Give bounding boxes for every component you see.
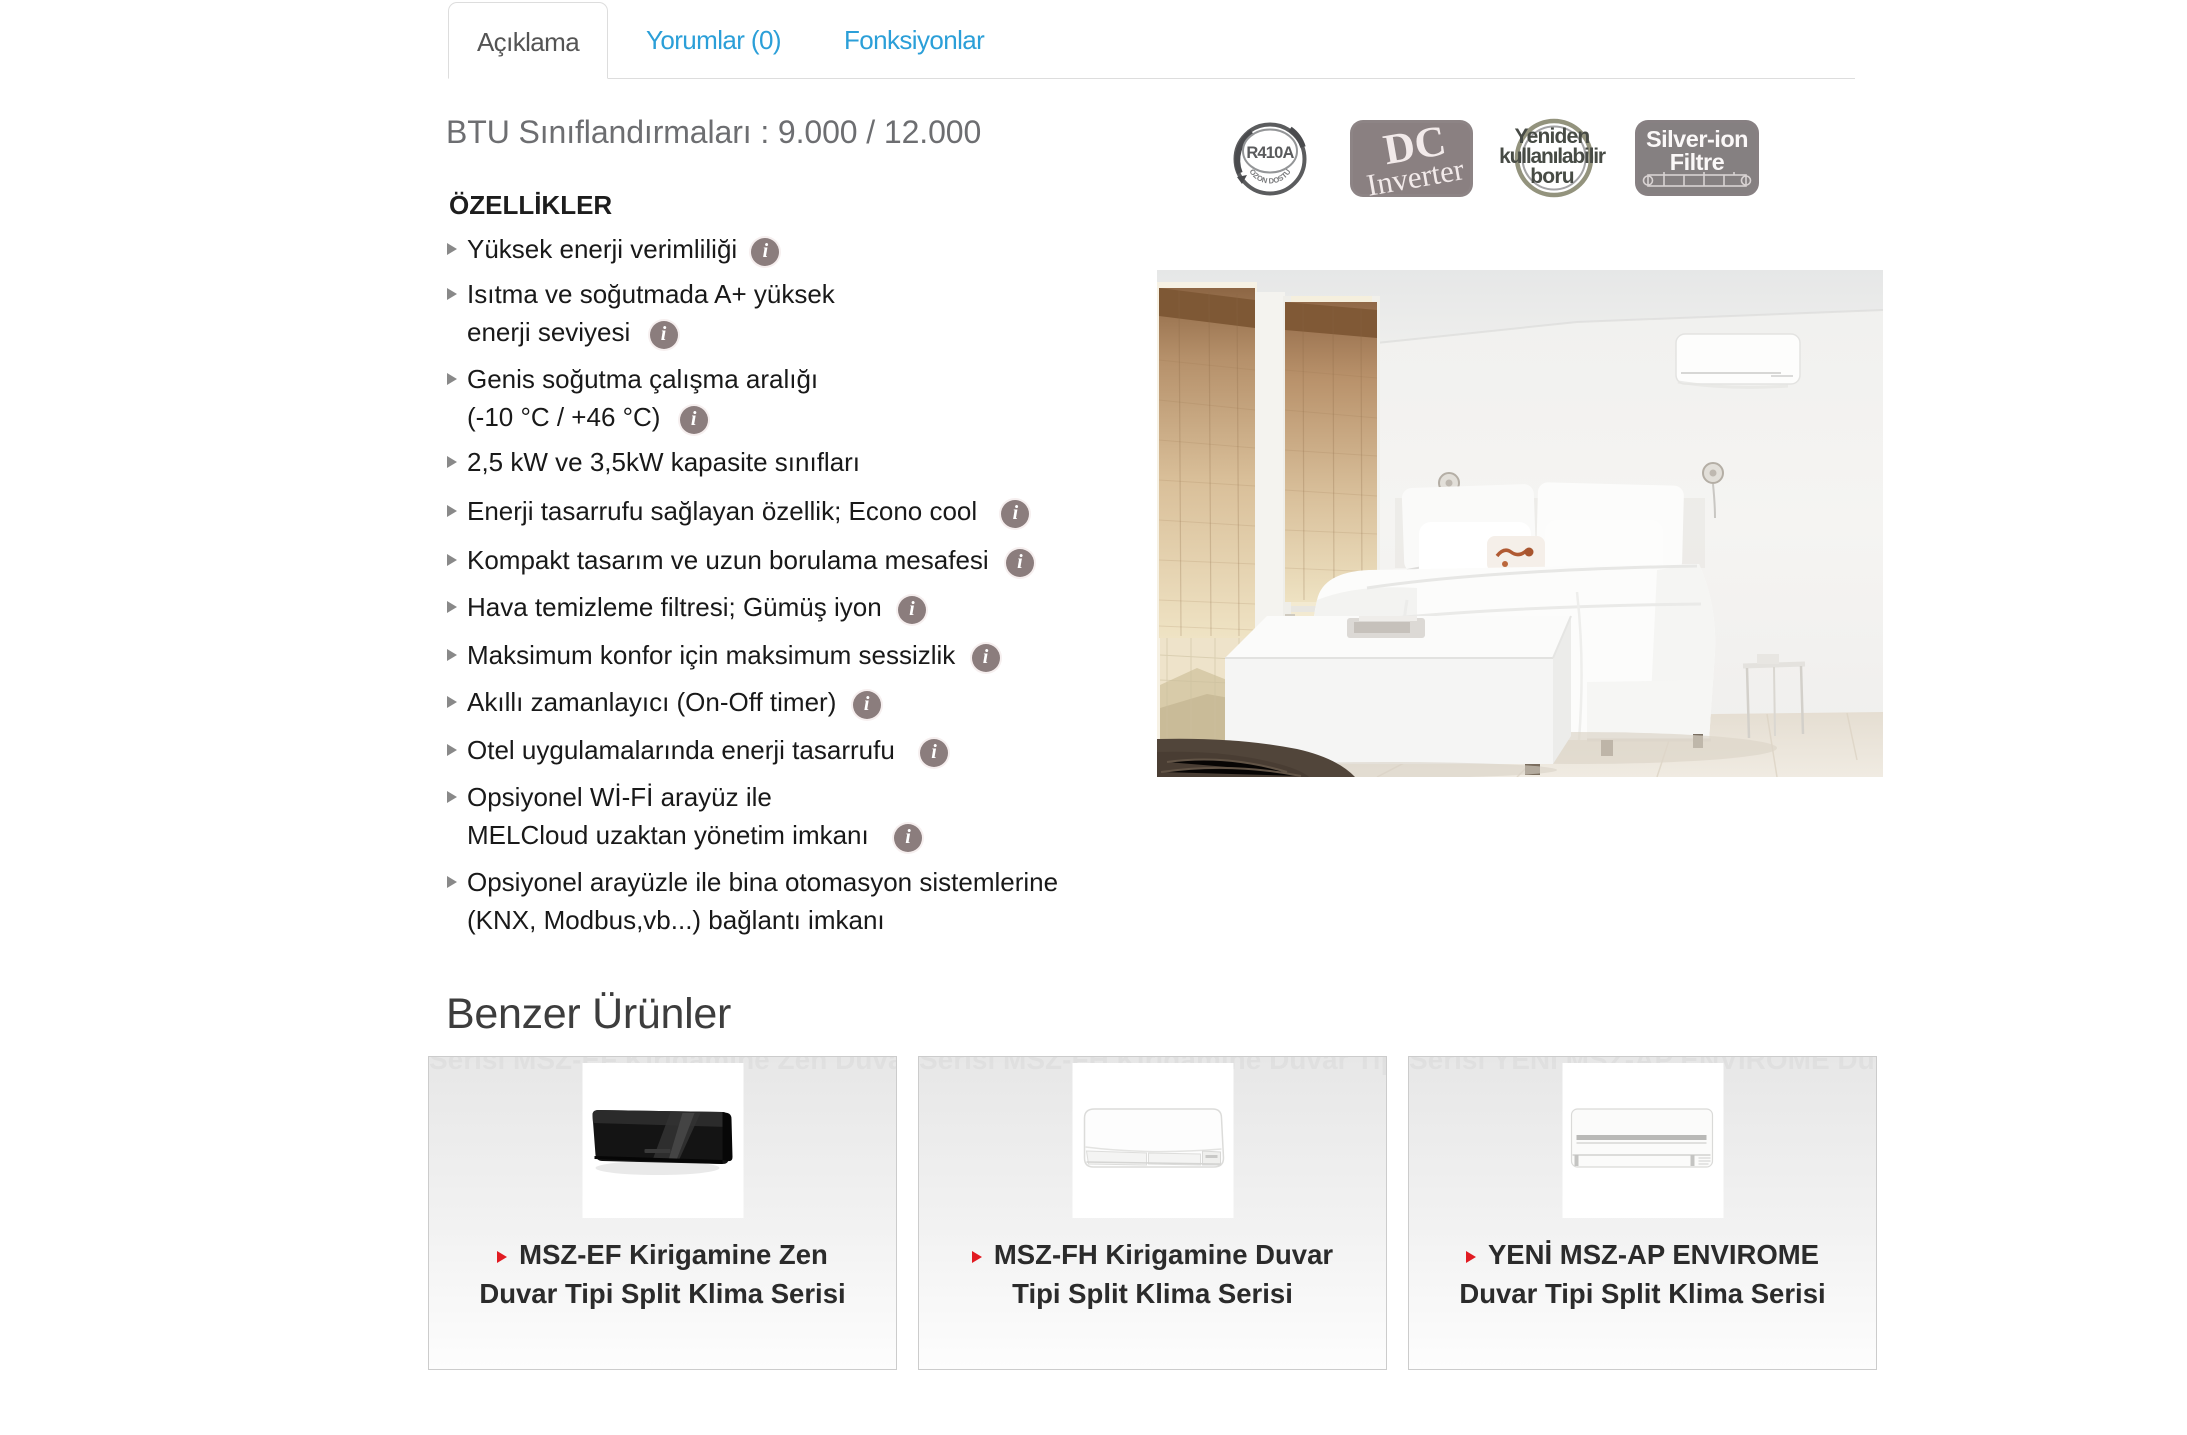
svg-text:boru: boru: [1530, 165, 1573, 188]
svg-text:R410A: R410A: [1246, 144, 1294, 162]
svg-text:Filtre: Filtre: [1670, 149, 1725, 175]
